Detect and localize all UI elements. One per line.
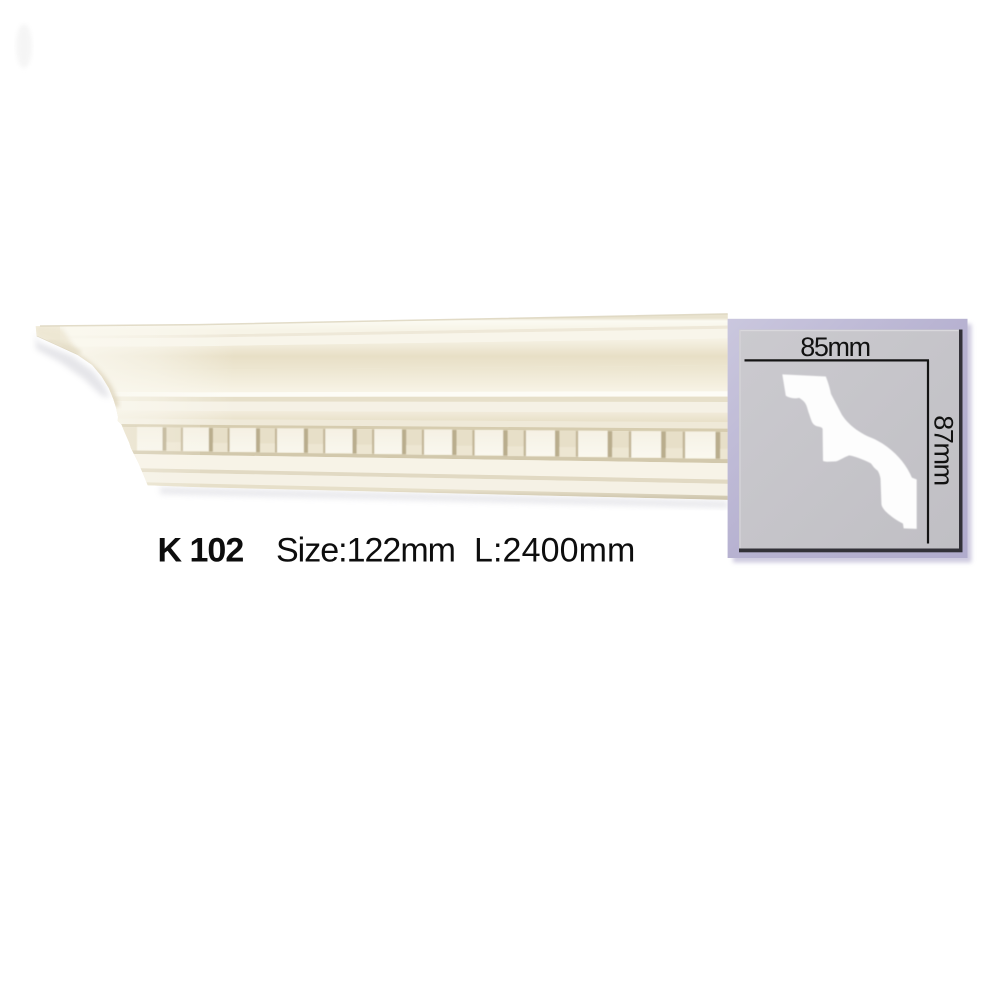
svg-text:85mm: 85mm [800,332,869,362]
svg-text:Size:122mm: Size:122mm [276,531,455,569]
svg-text:K 102: K 102 [158,531,244,569]
svg-text:L:2400mm: L:2400mm [474,531,635,569]
svg-text:87mm: 87mm [929,415,959,484]
